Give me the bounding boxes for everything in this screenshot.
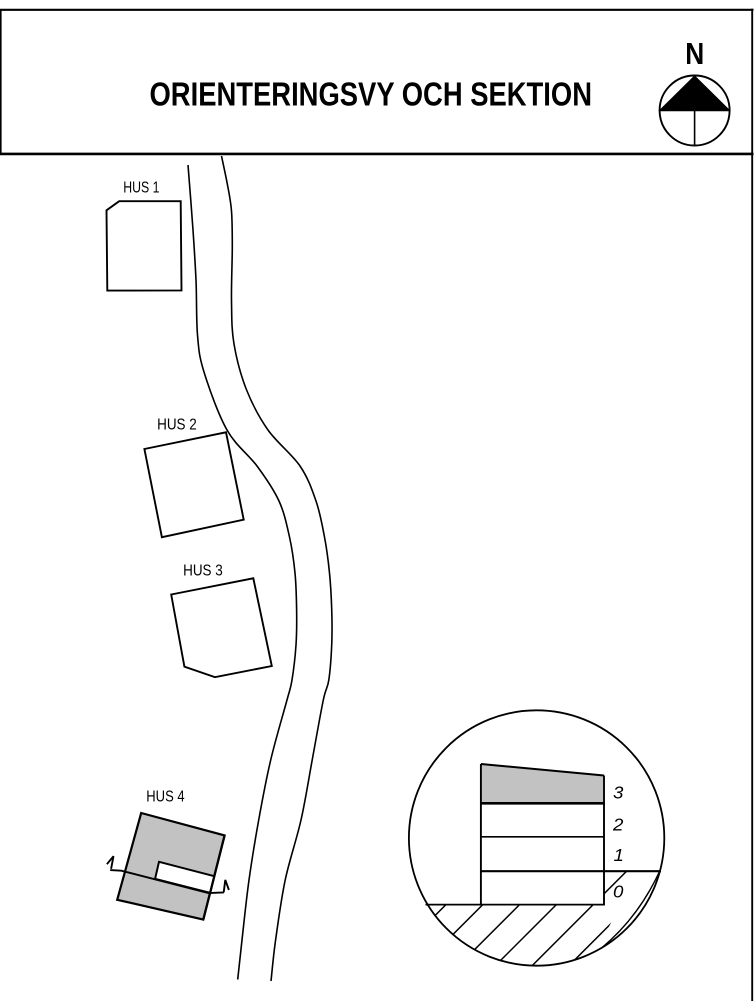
svg-text:2: 2 xyxy=(612,814,624,834)
svg-text:HUS 3: HUS 3 xyxy=(183,562,223,579)
svg-text:3: 3 xyxy=(613,782,624,802)
svg-text:1: 1 xyxy=(614,845,624,865)
svg-text:HUS 4: HUS 4 xyxy=(146,789,185,806)
svg-text:0: 0 xyxy=(613,882,624,902)
svg-text:HUS 2: HUS 2 xyxy=(157,416,197,433)
svg-text:N: N xyxy=(685,36,704,71)
svg-text:HUS 1: HUS 1 xyxy=(123,179,159,196)
svg-text:ORIENTERINGSVY OCH SEKTION: ORIENTERINGSVY OCH SEKTION xyxy=(150,75,593,112)
